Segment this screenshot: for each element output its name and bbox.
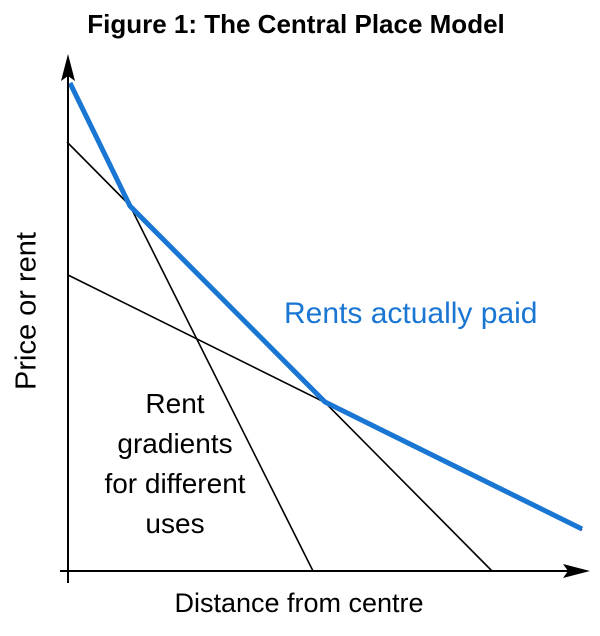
x-axis-label: Distance from centre bbox=[174, 588, 423, 619]
gradients-annotation-line-3: for different bbox=[104, 464, 245, 504]
gradients-annotation: Rent gradients for different uses bbox=[104, 384, 245, 544]
envelope-annotation: Rents actually paid bbox=[284, 297, 537, 331]
y-axis-label: Price or rent bbox=[11, 232, 44, 390]
gradients-annotation-line-1: Rent bbox=[104, 384, 245, 424]
gradients-annotation-line-4: uses bbox=[104, 504, 245, 544]
figure-central-place-model: Figure 1: The Central Place Model Price … bbox=[0, 0, 600, 636]
figure-title: Figure 1: The Central Place Model bbox=[0, 9, 592, 39]
gradients-annotation-line-2: gradients bbox=[104, 424, 245, 464]
